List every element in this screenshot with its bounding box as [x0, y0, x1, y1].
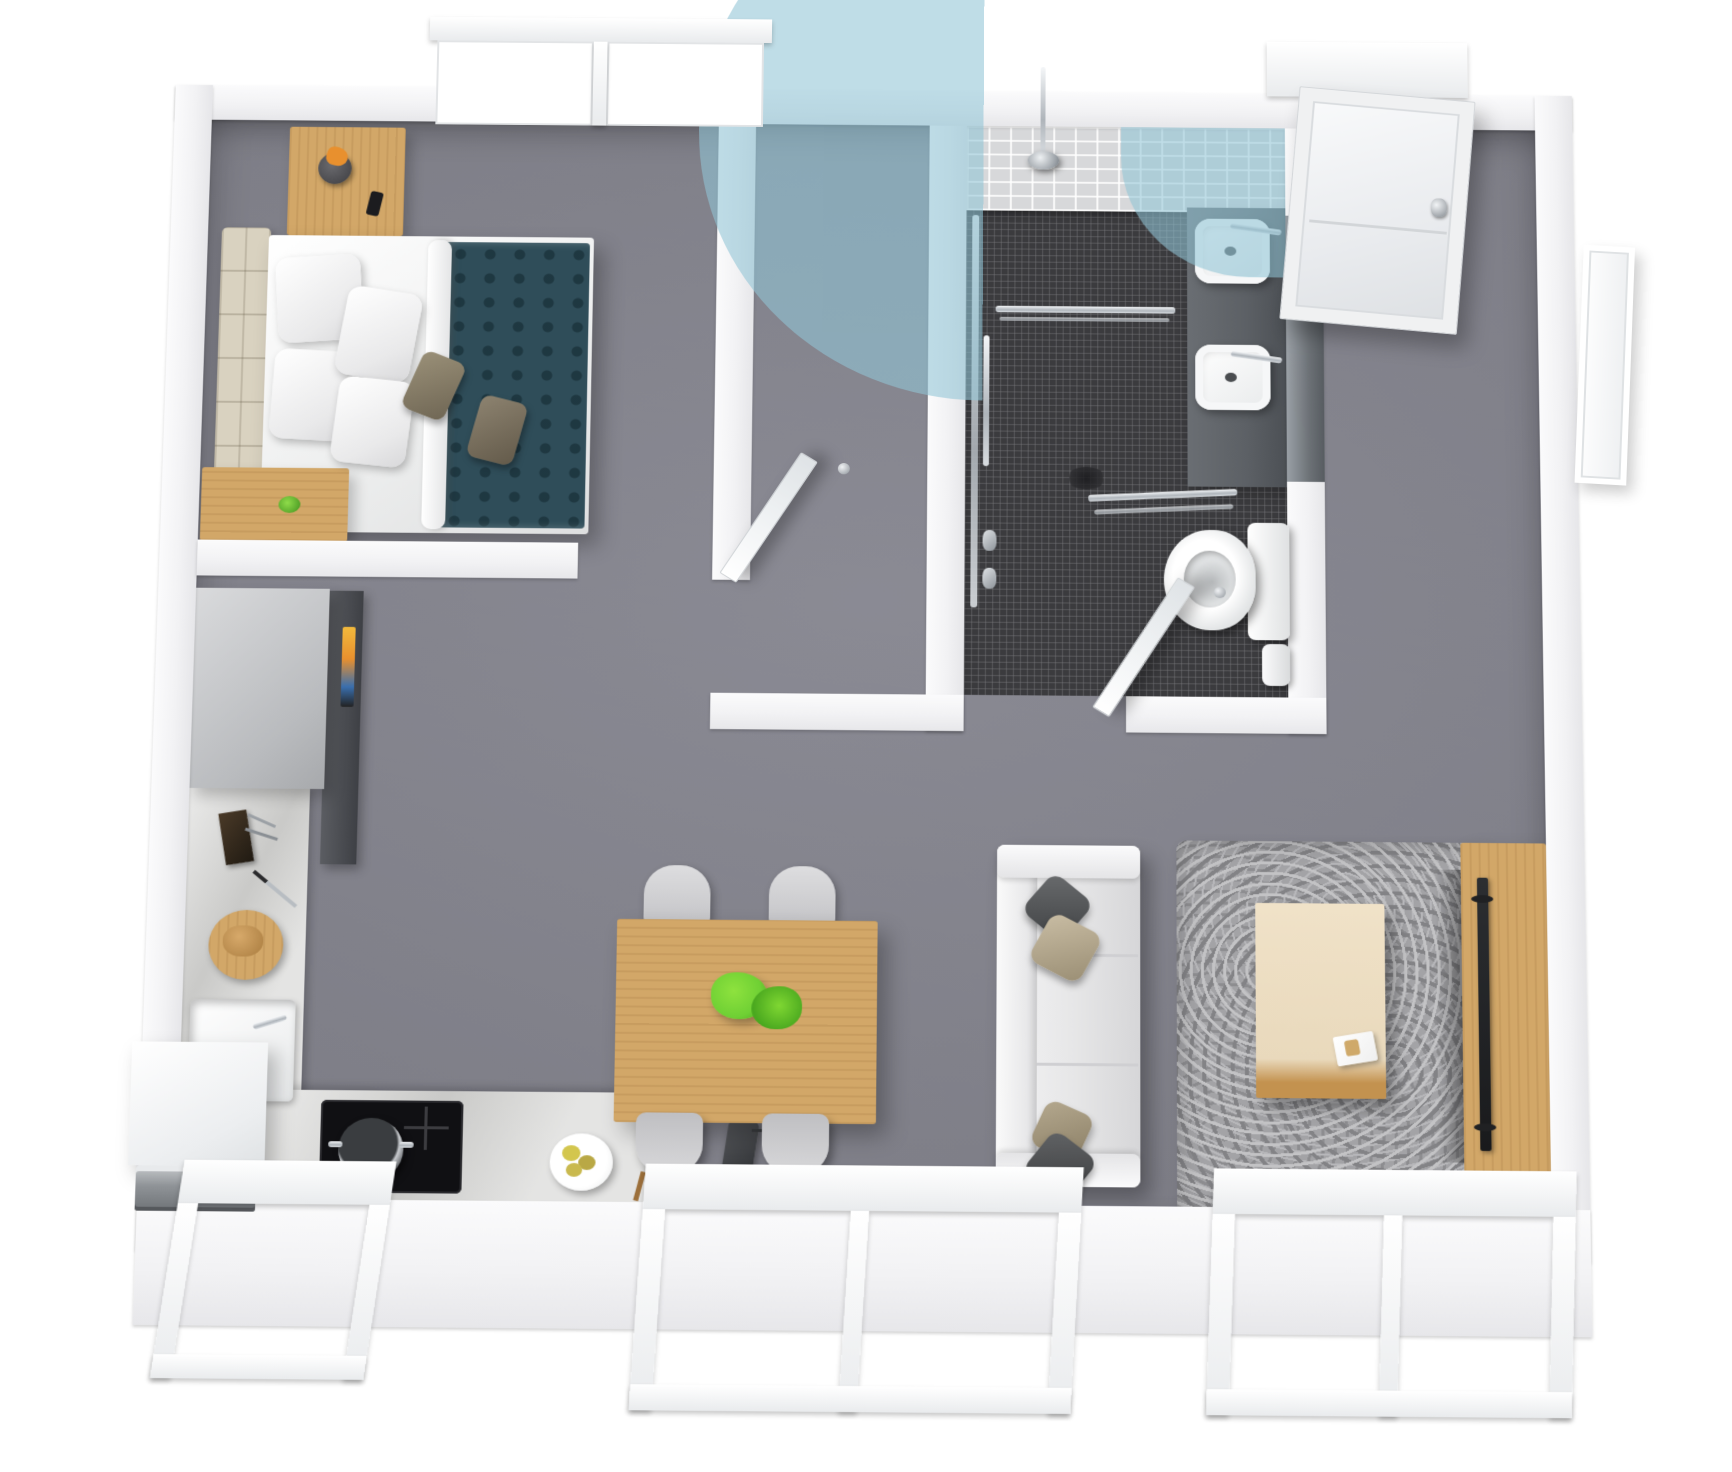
living-window-left[interactable]	[628, 1164, 1083, 1414]
tv-shadow	[1434, 870, 1464, 1163]
towel-hook	[982, 568, 996, 589]
bread-loaf	[222, 925, 263, 956]
door-handle-icon	[838, 463, 850, 474]
window-sill	[1206, 1389, 1572, 1418]
front-door-handle-icon	[1431, 198, 1447, 217]
wall-bedroom-south	[197, 540, 579, 579]
window-jamb	[1549, 1217, 1576, 1419]
window-head-rail	[643, 1164, 1084, 1213]
pot-handle	[399, 1142, 413, 1148]
sink-drain	[1225, 373, 1237, 382]
shower-head-icon[interactable]	[1028, 151, 1059, 170]
top-window[interactable]	[435, 17, 764, 127]
pot-handle	[328, 1141, 342, 1147]
window-head-rail	[1213, 1168, 1577, 1217]
kitchen-window[interactable]	[150, 1160, 397, 1380]
magazine-cover-spot	[1344, 1039, 1361, 1057]
shower-drain	[1066, 467, 1106, 490]
window-pane	[435, 40, 594, 125]
dining-chair[interactable]	[769, 866, 836, 928]
window-pane	[606, 42, 764, 127]
window-mullion	[1379, 1215, 1403, 1416]
nightstand[interactable]	[287, 127, 406, 236]
range-hood-cabinet	[128, 1041, 268, 1166]
shower-head-pole	[1040, 67, 1045, 155]
front-door-header	[1267, 42, 1468, 98]
wall-bathroom-south	[1126, 696, 1327, 734]
bed-pillow	[329, 375, 416, 469]
floorplan-canvas: { "meta": { "view": "3d-isometric-floor-…	[0, 0, 1732, 1472]
tv-stand[interactable]	[1460, 843, 1551, 1185]
dining-table[interactable]	[614, 919, 878, 1124]
window-sill	[628, 1384, 1071, 1414]
wall-bathroom-west	[925, 126, 967, 732]
tv-foot-icon	[1471, 895, 1493, 903]
coffee-table[interactable]	[1255, 903, 1386, 1099]
door-handle-icon	[1214, 587, 1226, 598]
bed-blanket	[439, 242, 590, 529]
window-mullion	[838, 1211, 869, 1412]
dining-chair[interactable]	[643, 865, 711, 927]
sink-drain	[1224, 247, 1236, 256]
waste-bin[interactable]	[1262, 644, 1290, 686]
window-sill	[150, 1354, 367, 1380]
wall-tv-screen[interactable]	[340, 627, 355, 707]
window-head-rail	[430, 17, 773, 43]
side-window[interactable]	[1575, 245, 1635, 486]
wall-bedroom-east	[712, 124, 756, 580]
window-head-rail	[178, 1160, 397, 1205]
window-mullion	[592, 42, 607, 126]
wall-hall-pier	[710, 693, 964, 731]
living-window-right[interactable]	[1206, 1168, 1577, 1418]
towel-hook	[983, 530, 997, 551]
tall-cabinet-fridge[interactable]	[189, 588, 329, 789]
shower-back-wall	[967, 126, 1286, 213]
bedroom-desk[interactable]	[200, 467, 349, 542]
grab-bar-vertical[interactable]	[983, 335, 990, 466]
sofa-armrest	[997, 845, 1140, 879]
tv-foot-icon	[1474, 1123, 1496, 1131]
floor-plan-scene	[115, 71, 1607, 1263]
toilet-bowl	[1184, 551, 1236, 608]
centerpiece-plant-2	[751, 986, 802, 1029]
cooktop-cross-line	[404, 1126, 449, 1129]
